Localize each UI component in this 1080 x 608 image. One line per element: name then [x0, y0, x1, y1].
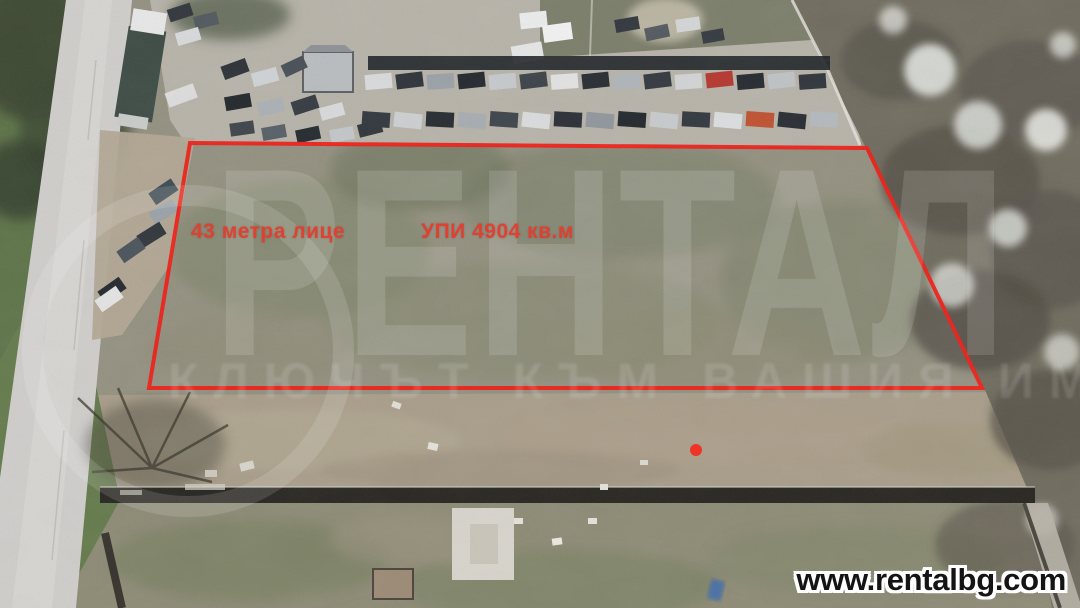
website-url: www.rentalbg.com — [796, 562, 1066, 598]
photo-mottle — [0, 0, 1080, 608]
aerial-photo: РЕНТАЛ КЛЮЧЪТ КЪМ ВАШИЯ ИМОТ 43 метра ли… — [0, 0, 1080, 608]
photo-scene — [0, 0, 1080, 608]
frontage-label: 43 метра лице — [191, 220, 345, 244]
plot-area-label: УПИ 4904 кв.м — [421, 220, 574, 244]
